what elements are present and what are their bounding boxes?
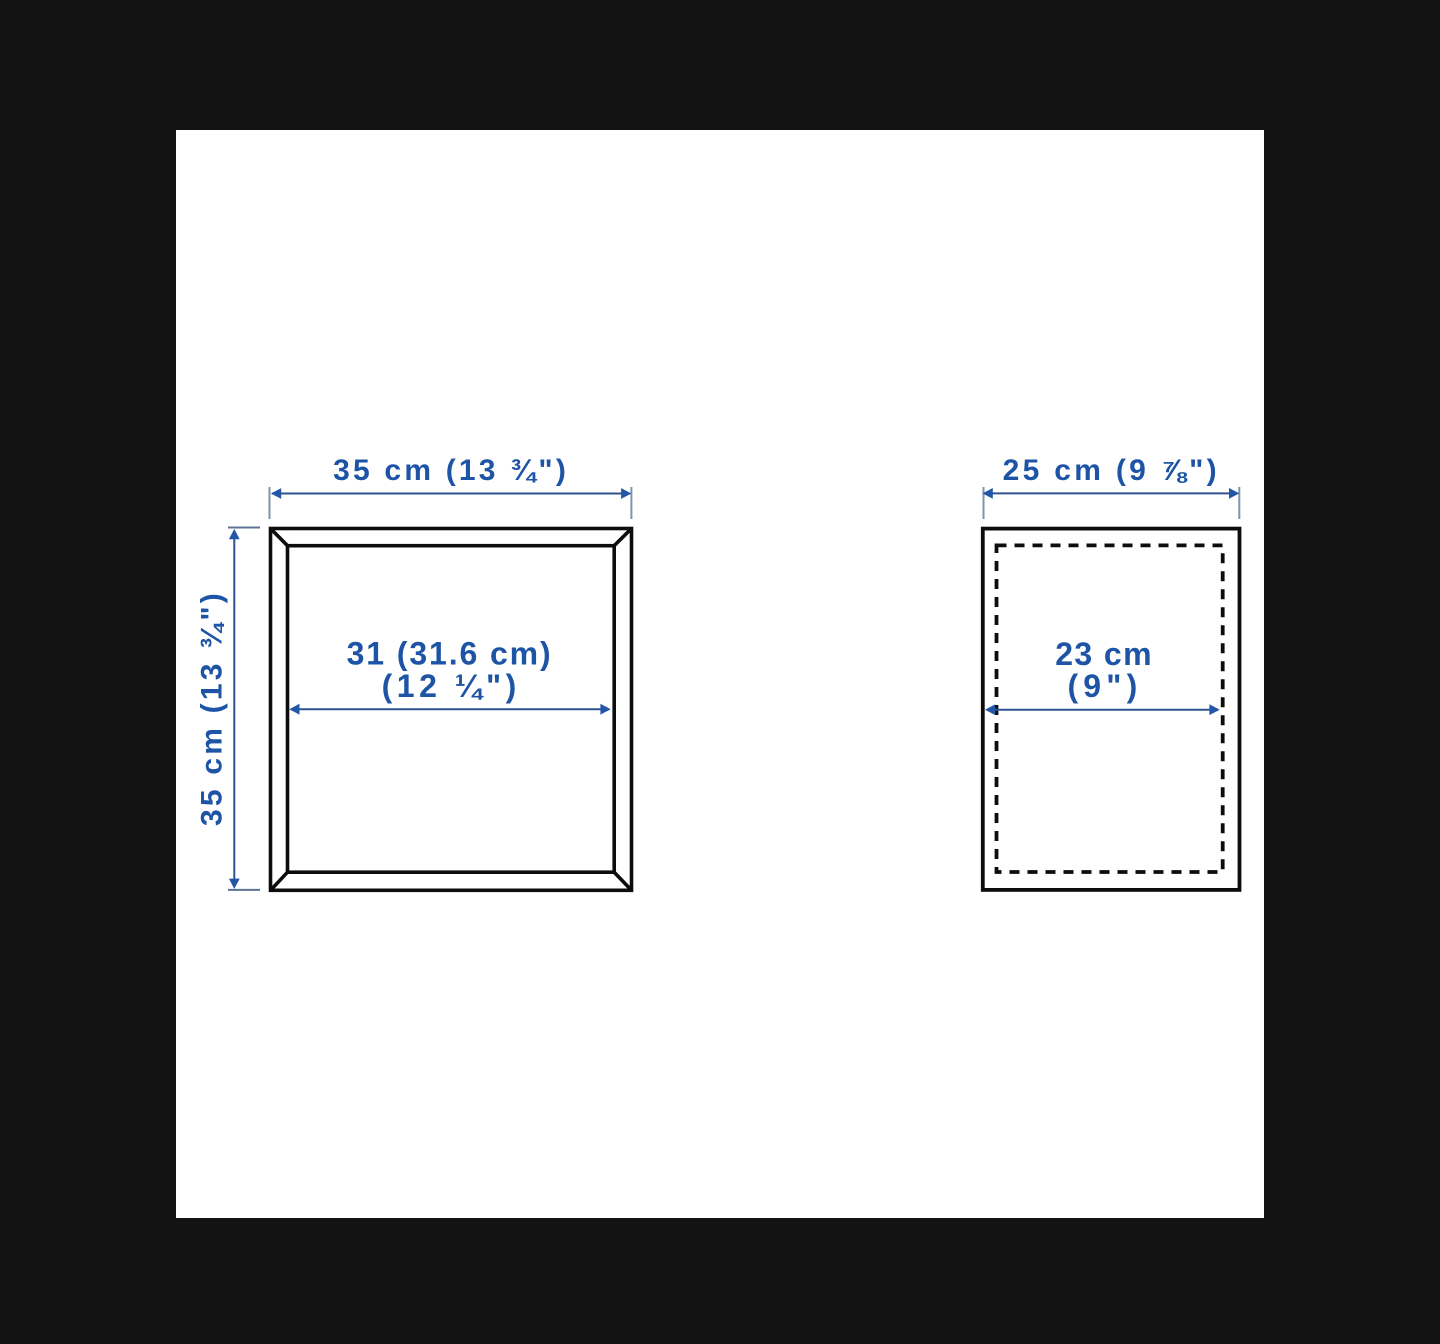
svg-text:23 cm: 23 cm — [1055, 636, 1153, 672]
svg-text:25 cm (9 ⅞"): 25 cm (9 ⅞") — [1003, 454, 1220, 487]
svg-text:31 (31.6 cm): 31 (31.6 cm) — [347, 636, 553, 672]
svg-text:35 cm (13 ¾"): 35 cm (13 ¾") — [333, 454, 569, 487]
svg-text:(9"): (9") — [1067, 668, 1142, 704]
svg-text:(12 ¼"): (12 ¼") — [382, 668, 521, 704]
svg-text:35 cm (13 ¾"): 35 cm (13 ¾") — [195, 590, 228, 826]
